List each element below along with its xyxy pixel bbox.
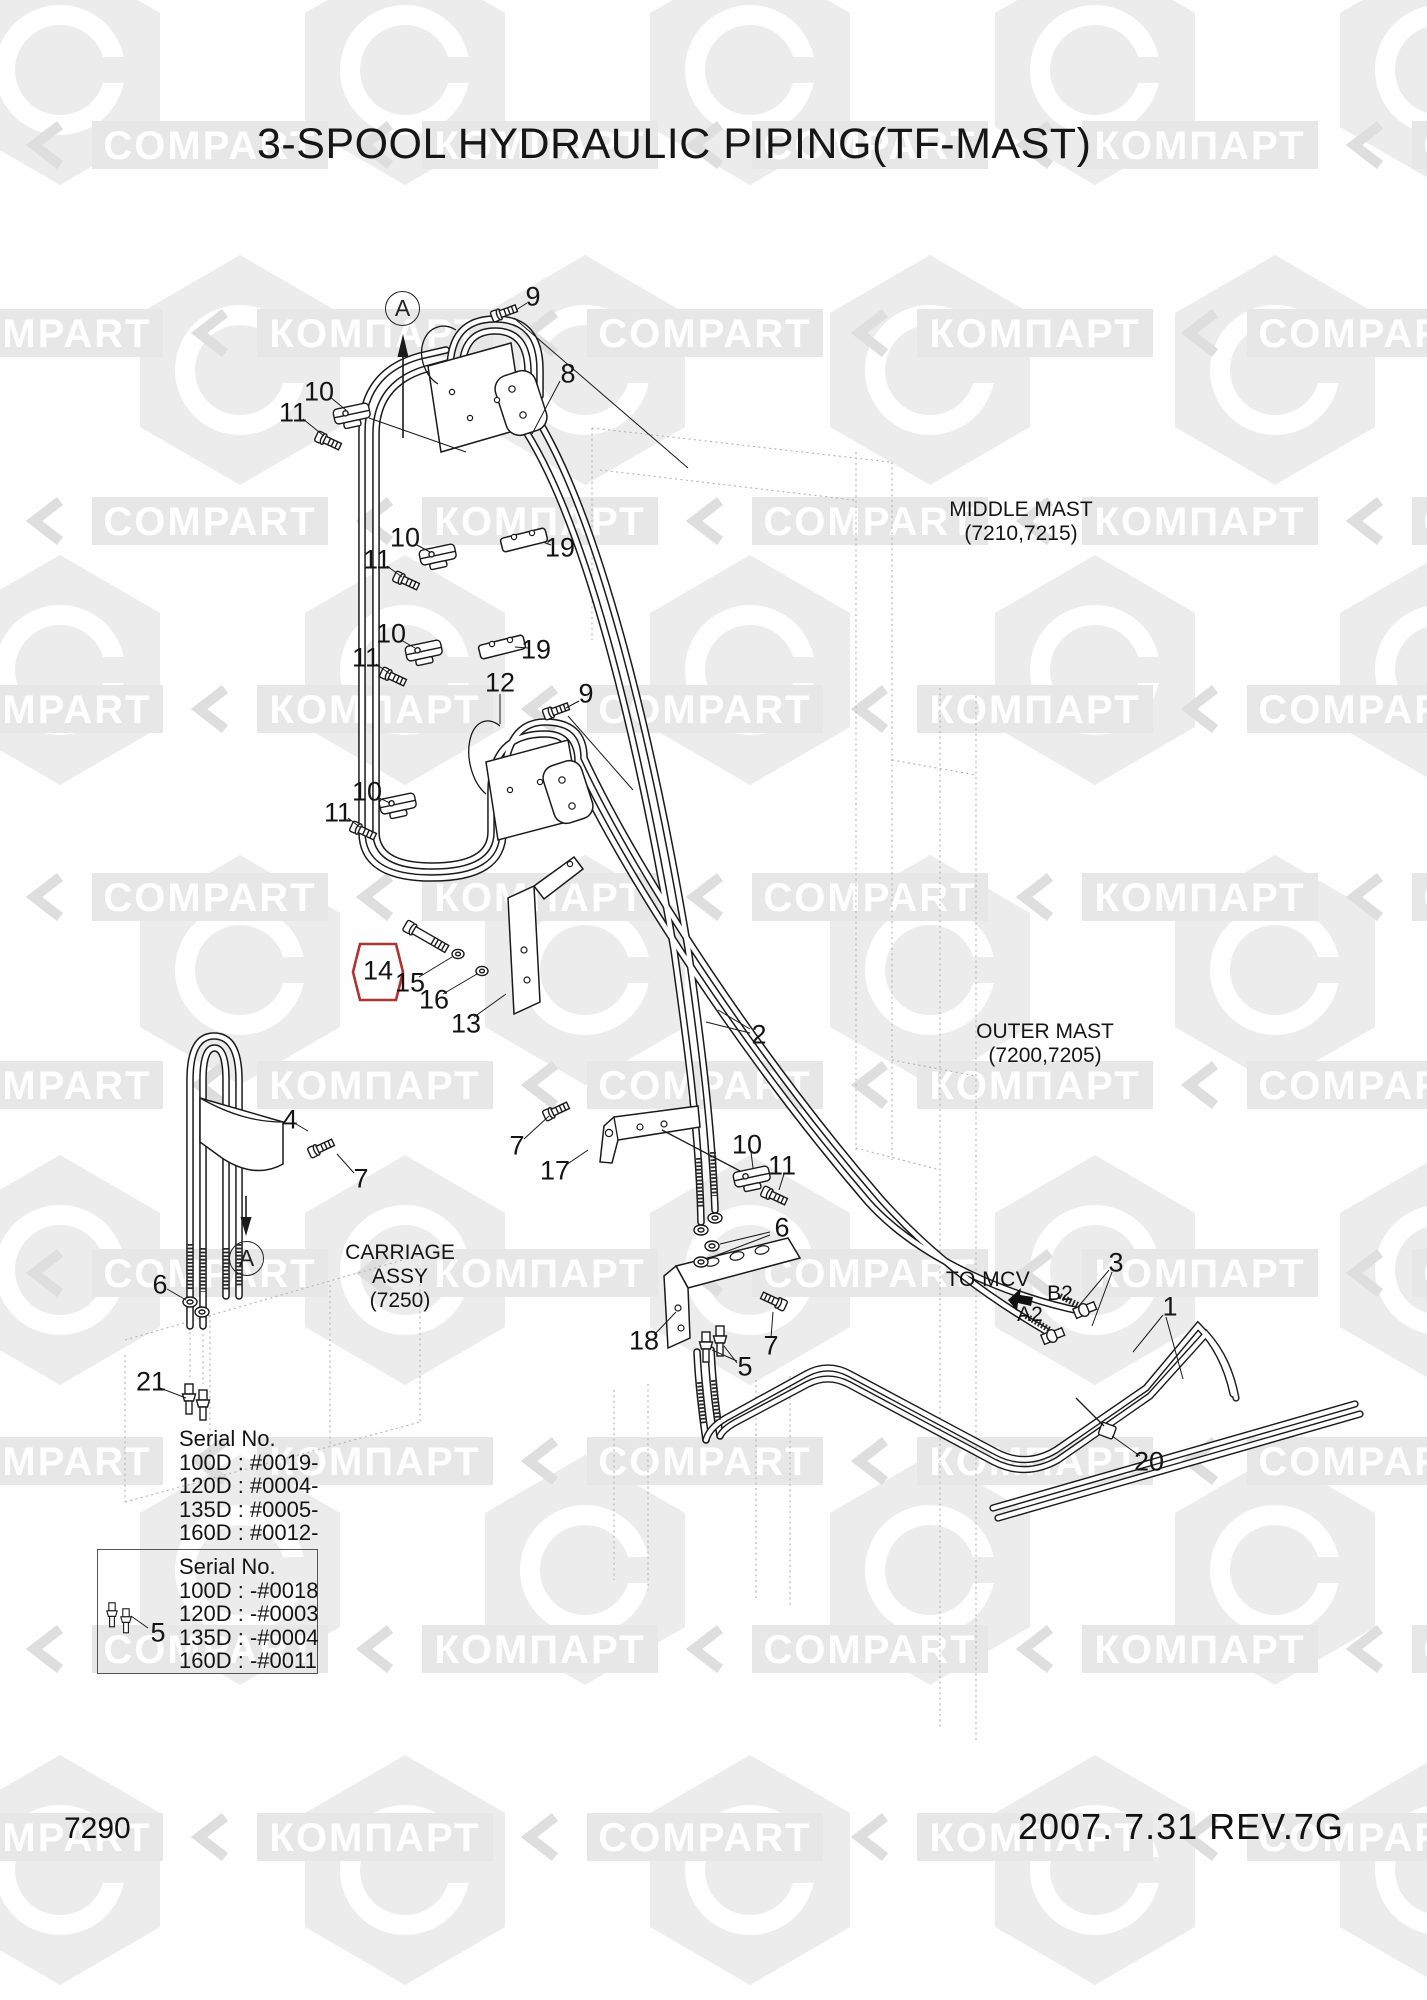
view-marker-letter: A (239, 1245, 254, 1272)
part-callout-10: 10 (352, 777, 382, 808)
part-callout-21: 21 (136, 1367, 166, 1398)
view-marker-letter: A (395, 295, 410, 322)
part-callout-10: 10 (390, 523, 420, 554)
revision-date: 2007. 7.31 REV.7G (1018, 1806, 1344, 1848)
part-callout-10: 10 (732, 1130, 762, 1161)
view-marker-a-top: A (385, 291, 420, 326)
part-callout-19: 19 (545, 533, 575, 564)
serial-row: 135D : -#0004 (179, 1626, 317, 1650)
page-title: 3-SPOOL HYDRAULIC PIPING(TF-MAST) (257, 120, 1091, 169)
part-callout-2: 2 (751, 1020, 766, 1051)
part-callout-10: 10 (304, 377, 334, 408)
part-callout-8: 8 (560, 359, 575, 390)
outer-mast-name: OUTER MAST (960, 1020, 1130, 1044)
serial-row: 120D : #0004- (179, 1474, 318, 1498)
part-callout-9: 9 (578, 679, 593, 710)
part-callout-10: 10 (376, 619, 406, 650)
serial-heading: Serial No. (179, 1427, 318, 1451)
serial-row: 160D : #0012- (179, 1521, 318, 1545)
serial-row: 100D : #0019- (179, 1451, 318, 1475)
part-callout-16: 16 (419, 985, 449, 1016)
carriage-code: (7250) (318, 1289, 482, 1313)
part-callout-11: 11 (324, 798, 352, 829)
part-callout-9: 9 (525, 282, 540, 313)
part-callout-4: 4 (282, 1105, 297, 1136)
part-callout-19: 19 (521, 635, 551, 666)
part-callout-12: 12 (485, 668, 515, 699)
part-callout-3: 3 (1108, 1248, 1123, 1279)
outer-mast-code: (7200,7205) (960, 1044, 1130, 1068)
part-callout-14: 14 (363, 956, 393, 987)
label-carriage-assy: CARRIAGE ASSY (7250) (318, 1241, 482, 1313)
view-marker-a-bottom: A (229, 1241, 264, 1276)
part-callout-11: 11 (768, 1151, 796, 1182)
part-callout-5: 5 (150, 1618, 165, 1649)
part-callout-11: 11 (279, 398, 307, 429)
part-callout-13: 13 (451, 1009, 481, 1040)
serial-row: 135D : #0005- (179, 1498, 318, 1522)
carriage-name: CARRIAGE ASSY (318, 1241, 482, 1289)
page-number: 7290 (64, 1812, 131, 1846)
part-callout-7: 7 (509, 1131, 524, 1162)
part-callout-11: 11 (352, 643, 380, 674)
part-callout-6: 6 (152, 1270, 167, 1301)
label-port-a2: A2 (1017, 1303, 1043, 1327)
part-callout-17: 17 (540, 1156, 570, 1187)
part-callout-18: 18 (629, 1326, 659, 1357)
pipe-lines (706, 1320, 1360, 1518)
serial-number-block: Serial No. 100D : #0019- 120D : #0004- 1… (179, 1427, 318, 1545)
label-to-mcv: TO MCV (946, 1268, 1030, 1292)
label-outer-mast: OUTER MAST (7200,7205) (960, 1020, 1130, 1068)
serial-row: 100D : -#0018 (179, 1579, 317, 1603)
part-callout-5: 5 (737, 1352, 752, 1383)
part-callout-11: 11 (363, 545, 391, 576)
part-callout-7: 7 (353, 1164, 368, 1195)
label-middle-mast: MIDDLE MAST (7210,7215) (936, 498, 1106, 546)
part-callout-7: 7 (763, 1331, 778, 1362)
serial-heading: Serial No. (179, 1555, 317, 1579)
part-callout-1: 1 (1162, 1292, 1177, 1323)
serial-row: 160D : -#0011 (179, 1649, 317, 1673)
label-port-b2: B2 (1047, 1282, 1073, 1306)
part-callout-20: 20 (1134, 1447, 1164, 1478)
middle-mast-code: (7210,7215) (936, 522, 1106, 546)
part-callout-6: 6 (774, 1213, 789, 1244)
hydraulic-piping-diagram (0, 0, 1427, 2000)
parts-catalog-page: КОМПАРТCOMPARTКОМПАРТCOMPARTКОМПАРТCOMPA… (0, 0, 1427, 2000)
middle-mast-name: MIDDLE MAST (936, 498, 1106, 522)
serial-number-box: Serial No. 100D : -#0018 120D : -#0003 1… (97, 1549, 318, 1674)
serial-row: 120D : -#0003 (179, 1602, 317, 1626)
